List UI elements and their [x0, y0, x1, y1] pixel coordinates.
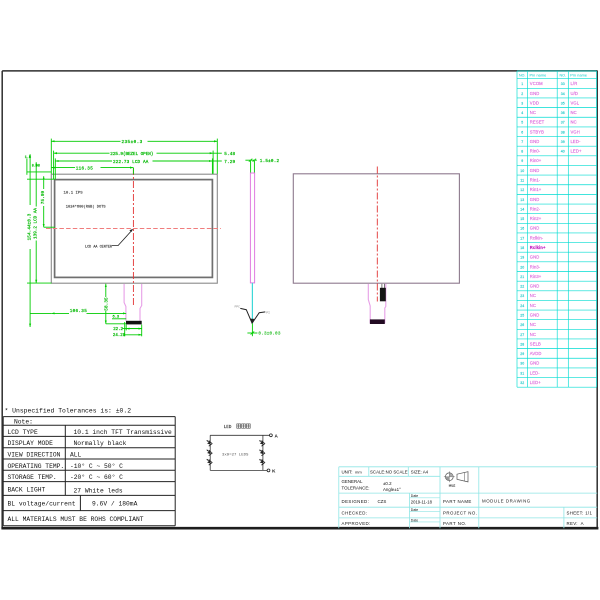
svg-text:NC: NC [530, 293, 536, 298]
svg-text:CHECKED:: CHECKED: [342, 510, 368, 515]
svg-text:Rin0-: Rin0- [530, 149, 541, 154]
svg-text:20: 20 [520, 265, 524, 269]
svg-text:35: 35 [561, 101, 565, 105]
svg-text:DISPLAY MODE: DISPLAY MODE [8, 440, 54, 447]
svg-text:30: 30 [520, 362, 524, 366]
svg-text:GND: GND [530, 361, 540, 366]
svg-text:ALL MATERIALS MUST BE ROHS COM: ALL MATERIALS MUST BE ROHS COMPLIANT [8, 516, 144, 523]
svg-text:2019-11-18: 2019-11-18 [411, 500, 433, 505]
svg-text:LED-: LED- [571, 139, 581, 144]
svg-text:VIEW DIRECTION: VIEW DIRECTION [8, 452, 61, 459]
svg-text:40: 40 [561, 150, 565, 154]
svg-text:±0.2: ±0.2 [383, 481, 392, 486]
svg-text:39: 39 [561, 140, 565, 144]
svg-text:U/D: U/D [571, 91, 579, 96]
svg-text:8.98: 8.98 [32, 165, 40, 169]
svg-text:MILE: MILE [449, 484, 456, 488]
svg-text:A: A [275, 433, 279, 438]
svg-text:32: 32 [520, 381, 524, 385]
svg-text:222.73 LCD AA: 222.73 LCD AA [113, 160, 149, 165]
svg-text:24: 24 [520, 304, 524, 308]
svg-text:2: 2 [521, 92, 523, 96]
svg-text:DESIGNED:: DESIGNED: [342, 499, 370, 504]
svg-text:Normally black: Normally black [74, 440, 127, 447]
svg-text:PI: PI [266, 312, 270, 315]
svg-text:26: 26 [520, 323, 524, 327]
svg-text:APPROVED:: APPROVED: [342, 521, 371, 526]
svg-text:10.1 inch TFT Transmissive: 10.1 inch TFT Transmissive [74, 429, 172, 436]
svg-text:9: 9 [521, 159, 523, 163]
svg-text:LCD TYPE: LCD TYPE [8, 429, 38, 436]
svg-text:15: 15 [520, 217, 524, 221]
svg-text:NC: NC [571, 110, 577, 115]
svg-text:1.5: 1.5 [25, 156, 31, 160]
svg-text:75.99: 75.99 [41, 190, 46, 204]
svg-text:225.9(BEZEL OPEN): 225.9(BEZEL OPEN) [110, 152, 153, 157]
svg-text:STORAGE TEMP.: STORAGE TEMP. [8, 474, 57, 481]
svg-text:Rin3+: Rin3+ [530, 274, 542, 279]
svg-text:17: 17 [520, 236, 524, 240]
svg-text:27 White leds: 27 White leds [74, 488, 123, 495]
svg-text:33: 33 [561, 82, 565, 86]
svg-text:5: 5 [521, 121, 523, 125]
svg-text:LED+: LED+ [571, 149, 582, 154]
svg-text:GND: GND [530, 226, 540, 231]
svg-text:7: 7 [521, 140, 523, 144]
svg-text:154.44±0.3: 154.44±0.3 [27, 213, 32, 240]
svg-text:NO.: NO. [519, 74, 525, 78]
svg-text:SHEET: 1/1: SHEET: 1/1 [567, 510, 593, 515]
svg-text:27: 27 [520, 333, 524, 337]
svg-text:NC: NC [530, 303, 536, 308]
svg-text:GND: GND [530, 312, 540, 317]
svg-text:1024*600(RGB) DOTS: 1024*600(RGB) DOTS [66, 205, 107, 210]
svg-text:NC: NC [530, 110, 536, 115]
svg-text:14: 14 [520, 207, 524, 211]
svg-text:LED-: LED- [530, 370, 540, 375]
svg-text:Angle±1°: Angle±1° [383, 487, 401, 492]
svg-text:TOLERANCE:: TOLERANCE: [342, 485, 370, 490]
svg-text:BL voltage/current: BL voltage/current [8, 501, 76, 508]
svg-text:25: 25 [520, 313, 524, 317]
svg-text:Rin0+: Rin0+ [530, 158, 542, 163]
svg-text:4: 4 [521, 111, 523, 115]
svg-text:MODULE DRAWING: MODULE DRAWING [482, 499, 531, 504]
svg-text:VDD: VDD [530, 100, 539, 105]
svg-text:22: 22 [520, 285, 524, 289]
svg-text:58.35: 58.35 [104, 297, 109, 311]
svg-text:10.1 IPS: 10.1 IPS [64, 191, 84, 195]
svg-text:ALL: ALL [70, 452, 82, 459]
svg-text:LCD AA CENTER: LCD AA CENTER [85, 246, 112, 250]
svg-text:GND: GND [530, 255, 540, 260]
svg-text:STBYB: STBYB [530, 129, 544, 134]
svg-text:34: 34 [561, 92, 565, 96]
svg-text:Rin1+: Rin1+ [530, 187, 542, 192]
svg-text:PART NO.: PART NO. [443, 521, 467, 526]
svg-text:UNIT:: UNIT: [342, 470, 353, 475]
svg-text:16: 16 [520, 227, 524, 231]
svg-text:22.2: 22.2 [113, 328, 123, 332]
svg-text:GND: GND [530, 197, 540, 202]
svg-text:LED: LED [224, 426, 232, 430]
svg-text:VCOM: VCOM [530, 81, 543, 86]
svg-text:GND: GND [530, 168, 540, 173]
svg-text:10: 10 [520, 169, 524, 173]
svg-text:Date: Date [411, 519, 418, 523]
svg-text:mm: mm [355, 470, 362, 475]
svg-text:GND: GND [530, 139, 540, 144]
svg-text:NC: NC [530, 332, 536, 337]
svg-text:Pin name: Pin name [570, 74, 587, 78]
svg-text:6: 6 [521, 130, 523, 134]
svg-text:Rclkin+: Rclkin+ [530, 245, 546, 250]
svg-text:18: 18 [520, 246, 524, 250]
svg-text:3: 3 [521, 101, 523, 105]
svg-text:1.5±0.2: 1.5±0.2 [260, 159, 280, 164]
svg-text:VGL: VGL [571, 100, 580, 105]
svg-text:116.35: 116.35 [76, 166, 93, 171]
svg-text:K: K [272, 469, 276, 474]
svg-text:NO.: NO. [560, 74, 566, 78]
svg-text:139.2 LCD AA: 139.2 LCD AA [34, 208, 39, 239]
svg-text:21: 21 [520, 275, 524, 279]
svg-text:38: 38 [561, 130, 565, 134]
svg-text:36: 36 [561, 111, 565, 115]
svg-text:NC: NC [530, 322, 536, 327]
svg-text:11: 11 [520, 179, 524, 183]
svg-text:RESET: RESET [530, 120, 545, 125]
svg-text:5.48: 5.48 [224, 152, 235, 157]
svg-text:GENERAL: GENERAL [342, 479, 364, 484]
svg-text:37: 37 [561, 121, 565, 125]
svg-text:L/R: L/R [571, 81, 578, 86]
svg-text:19: 19 [520, 256, 524, 260]
svg-text:28: 28 [520, 342, 524, 346]
svg-text:13: 13 [520, 198, 524, 202]
svg-text:106.35: 106.35 [70, 309, 87, 314]
svg-text:29: 29 [520, 352, 524, 356]
svg-text:CZS: CZS [378, 499, 387, 504]
svg-text:7.29: 7.29 [224, 160, 235, 165]
svg-text:SELB: SELB [530, 341, 541, 346]
svg-text:Pin name: Pin name [530, 74, 547, 78]
svg-text:-10° C ~ 50° C: -10° C ~ 50° C [70, 462, 123, 470]
svg-text:REV: A: REV: A [567, 521, 584, 526]
svg-text:GND: GND [530, 91, 540, 96]
svg-text:OPERATING TEMP.: OPERATING TEMP. [8, 463, 65, 470]
svg-text:BACK LIGHT: BACK LIGHT [8, 487, 46, 494]
svg-text:Date: Date [411, 494, 418, 498]
svg-text:* Unspecified Tolerances is: ±: * Unspecified Tolerances is: ±0.2 [5, 408, 132, 415]
svg-text:LED+: LED+ [530, 380, 541, 385]
svg-text:AVDD: AVDD [530, 351, 542, 356]
svg-text:31: 31 [520, 371, 524, 375]
svg-text:Rin2+: Rin2+ [530, 216, 542, 221]
svg-text:235±0.3: 235±0.3 [122, 140, 143, 145]
svg-text:SCALE:NO SCALE: SCALE:NO SCALE [370, 470, 408, 475]
svg-text:FPC: FPC [235, 306, 241, 309]
svg-text:PART NAME: PART NAME [443, 499, 472, 504]
svg-text:Rin1-: Rin1- [530, 178, 541, 183]
svg-text:9.6V / 180mA: 9.6V / 180mA [92, 501, 138, 508]
svg-text:0.3±0.03: 0.3±0.03 [258, 332, 280, 337]
svg-text:8: 8 [521, 150, 523, 154]
svg-text:GND: GND [530, 284, 540, 289]
svg-text:12: 12 [520, 188, 524, 192]
svg-text:3x9=27 LEDS: 3x9=27 LEDS [222, 454, 249, 458]
svg-text:Rin2-: Rin2- [530, 206, 541, 211]
svg-text:1: 1 [521, 82, 523, 86]
svg-text:NC: NC [571, 120, 577, 125]
svg-text:VGH: VGH [571, 129, 580, 134]
svg-text:Note:: Note: [14, 418, 33, 425]
svg-text:Date: Date [411, 508, 418, 512]
svg-text:23: 23 [520, 294, 524, 298]
svg-text:PROJECT NO.: PROJECT NO. [443, 510, 477, 515]
svg-text:Rin3-: Rin3- [530, 264, 541, 269]
svg-text:-20° C ~ 60° C: -20° C ~ 60° C [70, 473, 123, 481]
svg-text:SIZE: A4: SIZE: A4 [411, 470, 429, 475]
svg-text:Rclkin-: Rclkin- [530, 235, 544, 240]
